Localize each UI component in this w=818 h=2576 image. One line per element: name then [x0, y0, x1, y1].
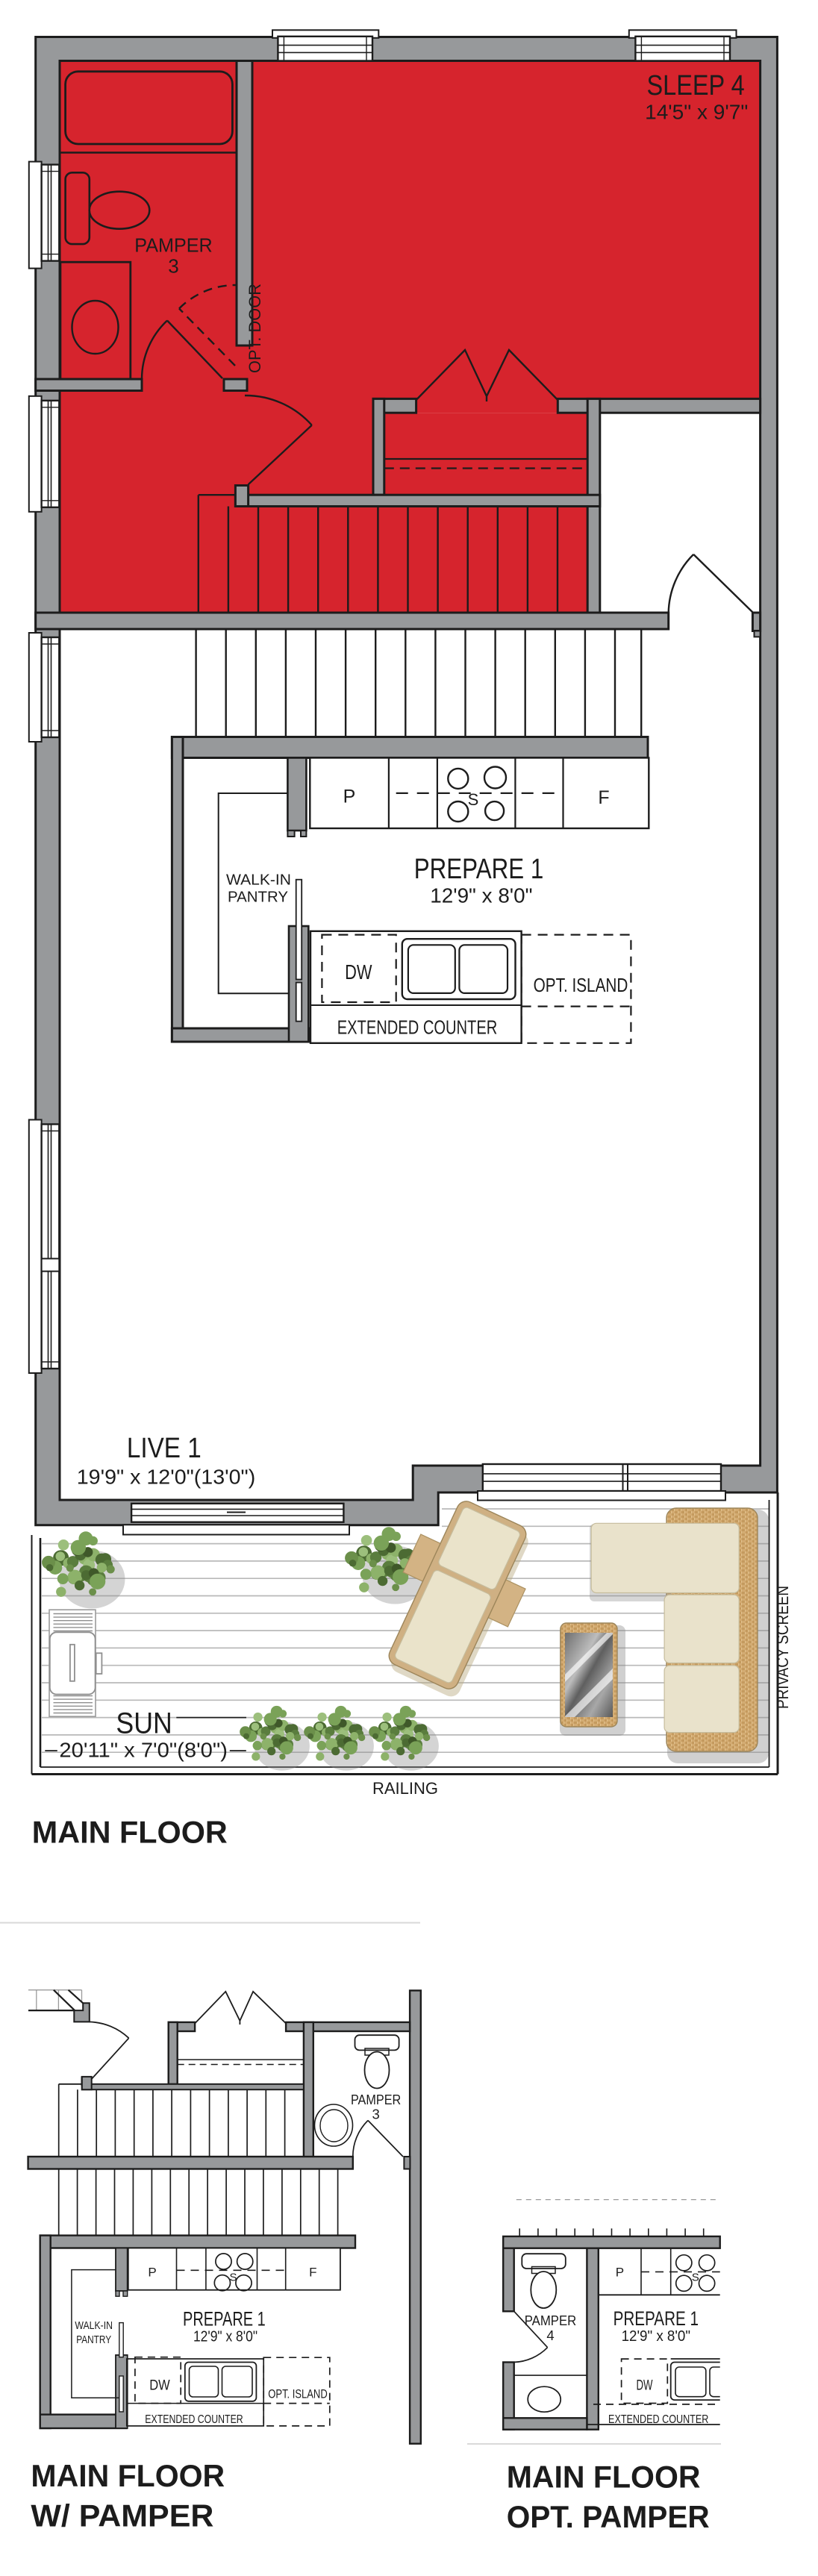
svg-text:PAMPER: PAMPER [134, 234, 212, 257]
svg-text:OPT. PAMPER: OPT. PAMPER [507, 2499, 710, 2534]
svg-text:EXTENDED COUNTER: EXTENDED COUNTER [608, 2413, 708, 2426]
svg-text:EXTENDED COUNTER: EXTENDED COUNTER [145, 2413, 243, 2426]
svg-text:SUN: SUN [116, 1707, 172, 1739]
svg-text:DW: DW [149, 2378, 170, 2394]
svg-text:S: S [468, 790, 479, 809]
svg-text:MAIN FLOOR: MAIN FLOOR [32, 1815, 228, 1850]
svg-text:20'11" x 7'0"(8'0"): 20'11" x 7'0"(8'0") [59, 1739, 228, 1762]
svg-text:MAIN FLOOR: MAIN FLOOR [507, 2459, 701, 2494]
svg-text:P: P [616, 2266, 624, 2280]
svg-text:OPT. ISLAND: OPT. ISLAND [534, 974, 628, 996]
svg-text:PAMPER: PAMPER [351, 2092, 401, 2107]
svg-text:PREPARE 1: PREPARE 1 [183, 2308, 266, 2330]
svg-text:OPT. DOOR: OPT. DOOR [246, 284, 264, 373]
svg-text:PAMPER: PAMPER [525, 2313, 577, 2328]
svg-text:PRIVACY SCREEN: PRIVACY SCREEN [773, 1586, 792, 1709]
svg-text:DW: DW [637, 2378, 653, 2394]
svg-text:12'9" x 8'0": 12'9" x 8'0" [430, 884, 532, 907]
svg-text:F: F [598, 787, 609, 808]
svg-text:PREPARE 1: PREPARE 1 [414, 854, 544, 885]
svg-text:WALK-IN: WALK-IN [226, 872, 291, 889]
svg-text:DW: DW [345, 960, 372, 984]
svg-text:P: P [148, 2266, 156, 2280]
svg-text:4: 4 [546, 2328, 554, 2343]
svg-text:F: F [309, 2266, 316, 2280]
svg-text:19'9" x 12'0"(13'0"): 19'9" x 12'0"(13'0") [77, 1466, 256, 1489]
svg-text:3: 3 [372, 2107, 379, 2122]
svg-text:S: S [692, 2272, 699, 2284]
svg-text:LIVE 1: LIVE 1 [127, 1433, 202, 1464]
svg-text:PANTRY: PANTRY [228, 890, 288, 906]
svg-text:RAILING: RAILING [372, 1779, 438, 1798]
svg-text:PANTRY: PANTRY [76, 2334, 111, 2346]
svg-text:W/ PAMPER: W/ PAMPER [31, 2498, 213, 2533]
svg-text:3: 3 [168, 255, 178, 278]
svg-text:P: P [343, 787, 356, 807]
svg-text:OPT. ISLAND: OPT. ISLAND [268, 2387, 327, 2401]
svg-text:SLEEP 4: SLEEP 4 [647, 70, 745, 101]
svg-text:PREPARE 1: PREPARE 1 [613, 2307, 699, 2330]
svg-text:12'9" x 8'0": 12'9" x 8'0" [193, 2329, 257, 2345]
svg-text:14'5" x 9'7": 14'5" x 9'7" [645, 101, 748, 124]
svg-text:12'9" x 8'0": 12'9" x 8'0" [622, 2328, 690, 2345]
svg-text:MAIN FLOOR: MAIN FLOOR [31, 2458, 225, 2493]
svg-text:S: S [229, 2272, 237, 2284]
svg-text:EXTENDED COUNTER: EXTENDED COUNTER [337, 1016, 498, 1039]
svg-text:WALK-IN: WALK-IN [75, 2320, 113, 2332]
